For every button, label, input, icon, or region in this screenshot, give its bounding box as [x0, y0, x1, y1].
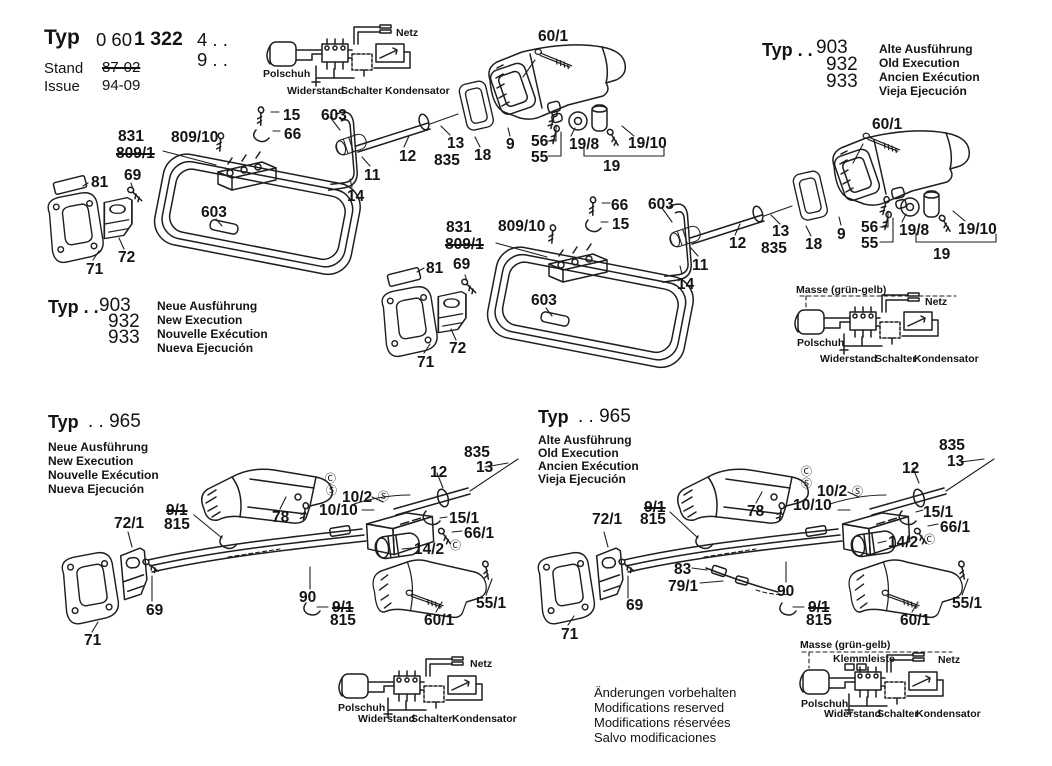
part-callout-60-1: 60/1: [424, 613, 454, 629]
part-callout-72: 72: [449, 341, 466, 357]
part-callout-90: 90: [777, 584, 794, 600]
part-callout-69: 69: [626, 598, 643, 614]
part-callout-603: 603: [648, 197, 674, 213]
part-callout-71: 71: [86, 262, 103, 278]
part-callout-14-2: 14/2: [888, 535, 918, 551]
part-callout-18: 18: [805, 237, 822, 253]
part-callout-72: 72: [118, 250, 135, 266]
part-callout-815: 815: [164, 517, 190, 533]
part-callout-603: 603: [321, 108, 347, 124]
part-callout-809-1: 809/1: [116, 146, 155, 162]
part-callout-66-1: 66/1: [464, 526, 494, 542]
part-callout-13: 13: [447, 136, 464, 152]
part-callout-71: 71: [561, 627, 578, 643]
part-callout-55: 55: [531, 150, 548, 166]
part-callout-831: 831: [118, 129, 144, 145]
part-callout-19: 19: [603, 159, 620, 175]
part-callout-835: 835: [939, 438, 965, 454]
part-callout-835: 835: [761, 241, 787, 257]
part-callout-809-1: 809/1: [445, 237, 484, 253]
part-callout-831: 831: [446, 220, 472, 236]
part-callout-12: 12: [399, 149, 416, 165]
part-callout-14: 14: [347, 189, 364, 205]
part-callouts-layer: 60/11566603831809/1809/10816960312138351…: [0, 0, 1052, 766]
part-callout-81: 81: [91, 175, 108, 191]
part-callout-60-1: 60/1: [538, 29, 568, 45]
part-callout-78: 78: [272, 510, 289, 526]
part-callout-14-2: 14/2: [414, 542, 444, 558]
part-callout-19: 19: [933, 247, 950, 263]
part-callout-603: 603: [201, 205, 227, 221]
part-callout-9: 9: [506, 137, 515, 153]
part-callout-72-1: 72/1: [592, 512, 622, 528]
part-callout-56: 56: [531, 134, 548, 150]
part-callout-19-10: 19/10: [628, 136, 667, 152]
part-callout-c-marker: Ⓒ: [450, 541, 461, 552]
part-callout-55-1: 55/1: [952, 596, 982, 612]
part-callout-83: 83: [674, 562, 691, 578]
part-callout-603: 603: [531, 293, 557, 309]
part-callout-11: 11: [364, 168, 380, 184]
part-callout-72-1: 72/1: [114, 516, 144, 532]
part-callout-69: 69: [124, 168, 141, 184]
part-callout-s-marker: Ⓢ: [326, 486, 337, 497]
part-callout-15: 15: [283, 108, 300, 124]
part-callout-12: 12: [729, 236, 746, 252]
part-callout-815: 815: [330, 613, 356, 629]
part-callout-c-marker: Ⓒ: [325, 474, 336, 485]
part-callout-18: 18: [474, 148, 491, 164]
part-callout-60-1: 60/1: [900, 613, 930, 629]
part-callout-15: 15: [612, 217, 629, 233]
part-callout-69: 69: [146, 603, 163, 619]
part-callout-c-marker: Ⓒ: [801, 467, 812, 478]
part-callout-10-10: 10/10: [793, 498, 832, 514]
part-callout-11: 11: [692, 258, 708, 274]
part-callout-12: 12: [902, 461, 919, 477]
part-callout-809-10: 809/10: [171, 130, 218, 146]
part-callout-66-1: 66/1: [940, 520, 970, 536]
part-callout-c-marker: Ⓒ: [924, 535, 935, 546]
part-callout-10-10: 10/10: [319, 503, 358, 519]
part-callout-13: 13: [947, 454, 964, 470]
part-callout-s-marker: Ⓢ: [801, 479, 812, 490]
part-callout-60-1: 60/1: [872, 117, 902, 133]
part-callout-66: 66: [284, 127, 301, 143]
part-callout-78: 78: [747, 504, 764, 520]
part-callout-79-1: 79/1: [668, 579, 698, 595]
part-callout-13: 13: [772, 224, 789, 240]
part-callout-81: 81: [426, 261, 443, 277]
part-callout-815: 815: [640, 512, 666, 528]
part-callout-19-8: 19/8: [569, 137, 599, 153]
part-callout-90: 90: [299, 590, 316, 606]
part-callout-815: 815: [806, 613, 832, 629]
part-callout-12: 12: [430, 465, 447, 481]
part-callout-9: 9: [837, 227, 846, 243]
part-callout-56: 56: [861, 220, 878, 236]
part-callout-809-10: 809/10: [498, 219, 545, 235]
part-callout-s-marker: Ⓢ: [378, 492, 389, 503]
part-callout-13: 13: [476, 460, 493, 476]
part-callout-835: 835: [434, 153, 460, 169]
part-callout-66: 66: [611, 198, 628, 214]
part-callout-19-10: 19/10: [958, 222, 997, 238]
part-callout-71: 71: [84, 633, 101, 649]
part-callout-71: 71: [417, 355, 434, 371]
parts-diagram-sheet: Typ 0 60 1 322 4 . . 9 . . Stand 87-02 I…: [0, 0, 1052, 766]
part-callout-19-8: 19/8: [899, 223, 929, 239]
part-callout-14: 14: [677, 277, 694, 293]
part-callout-55-1: 55/1: [476, 596, 506, 612]
part-callout-55: 55: [861, 236, 878, 252]
part-callout-69: 69: [453, 257, 470, 273]
part-callout-s-marker: Ⓢ: [852, 487, 863, 498]
